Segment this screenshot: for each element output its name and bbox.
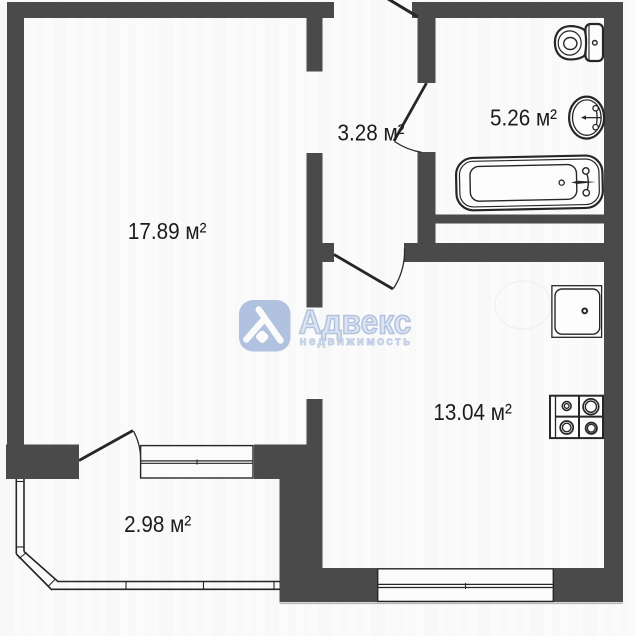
svg-text:5.26 м²: 5.26 м² — [490, 104, 557, 131]
svg-text:17.89 м²: 17.89 м² — [128, 218, 207, 245]
svg-text:недвижимость: недвижимость — [300, 334, 413, 348]
svg-text:2.98 м²: 2.98 м² — [124, 511, 191, 538]
svg-text:3.28 м²: 3.28 м² — [337, 119, 404, 146]
svg-text:13.04 м²: 13.04 м² — [433, 399, 512, 426]
